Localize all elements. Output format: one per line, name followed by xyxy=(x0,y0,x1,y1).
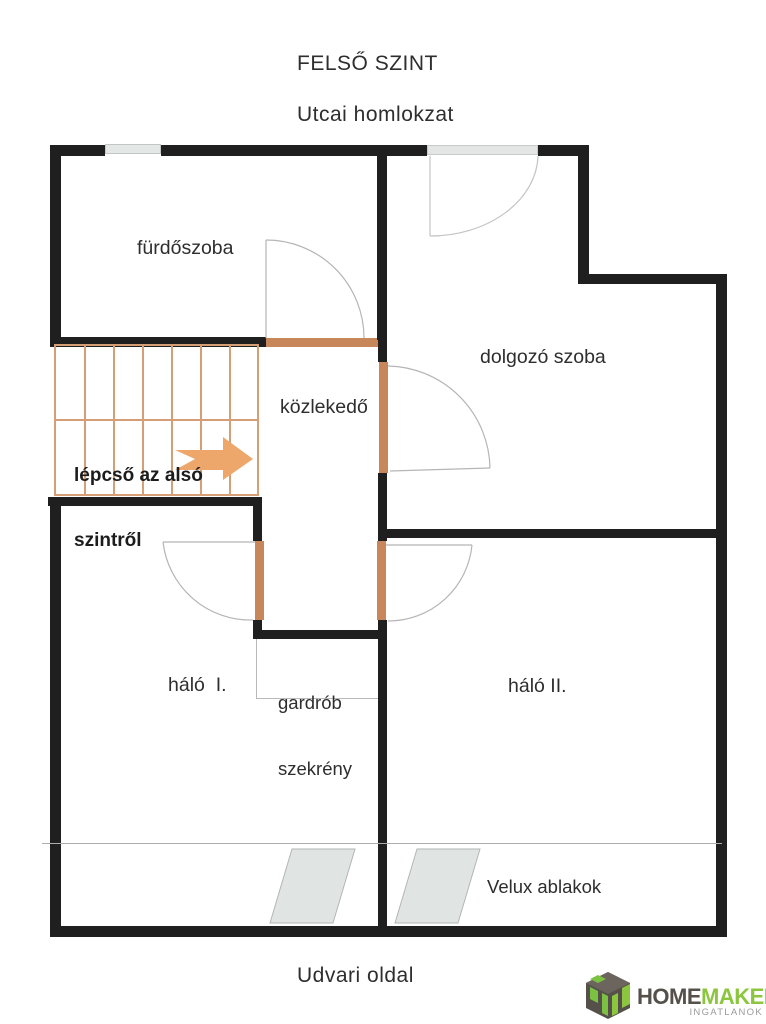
door-arc xyxy=(388,545,472,621)
door-arc xyxy=(388,366,490,468)
study-door-swing xyxy=(388,366,490,471)
top-door-swing xyxy=(430,156,538,236)
room-label-study: dolgozó szoba xyxy=(480,346,606,369)
cube-green-right xyxy=(612,993,618,1016)
wardrobe-label-line1: gardrób xyxy=(278,692,352,714)
bathroom-door-swing xyxy=(266,240,364,338)
stairs-note-line2: szintről xyxy=(74,530,203,552)
velux-label: Velux ablakok xyxy=(487,876,601,898)
brand-home: HOME xyxy=(637,984,701,1009)
room-label-bedroom1: háló I. xyxy=(168,674,227,697)
floor-plan: FELSŐ SZINT Utcai homlokzat Udvari oldal xyxy=(0,0,766,1024)
door-arc xyxy=(266,240,364,338)
cube-green-center xyxy=(602,993,608,1016)
brand-maker: MAKER xyxy=(701,984,766,1009)
bedroom2-door-swing xyxy=(386,545,472,621)
room-label-bathroom: fürdőszoba xyxy=(137,237,233,260)
velux-windows xyxy=(270,849,480,923)
homemaker-logo-cube-icon xyxy=(581,971,635,1023)
velux-window-icon xyxy=(395,849,480,923)
door-chord-line xyxy=(390,468,490,471)
room-label-wardrobe: gardrób szekrény xyxy=(278,648,352,824)
stairs-note-line1: lépcső az alsó xyxy=(74,465,203,487)
cube-green-far-right xyxy=(622,984,630,1008)
door-arc xyxy=(430,156,538,236)
room-label-hallway: közlekedő xyxy=(280,396,368,419)
wardrobe-label-line2: szekrény xyxy=(278,758,352,780)
stairs-note: lépcső az alsó szintről xyxy=(74,422,203,594)
homemaker-tagline: INGATLANOK xyxy=(660,1007,763,1018)
velux-window-icon xyxy=(270,849,355,923)
room-label-bedroom2: háló II. xyxy=(508,675,567,698)
